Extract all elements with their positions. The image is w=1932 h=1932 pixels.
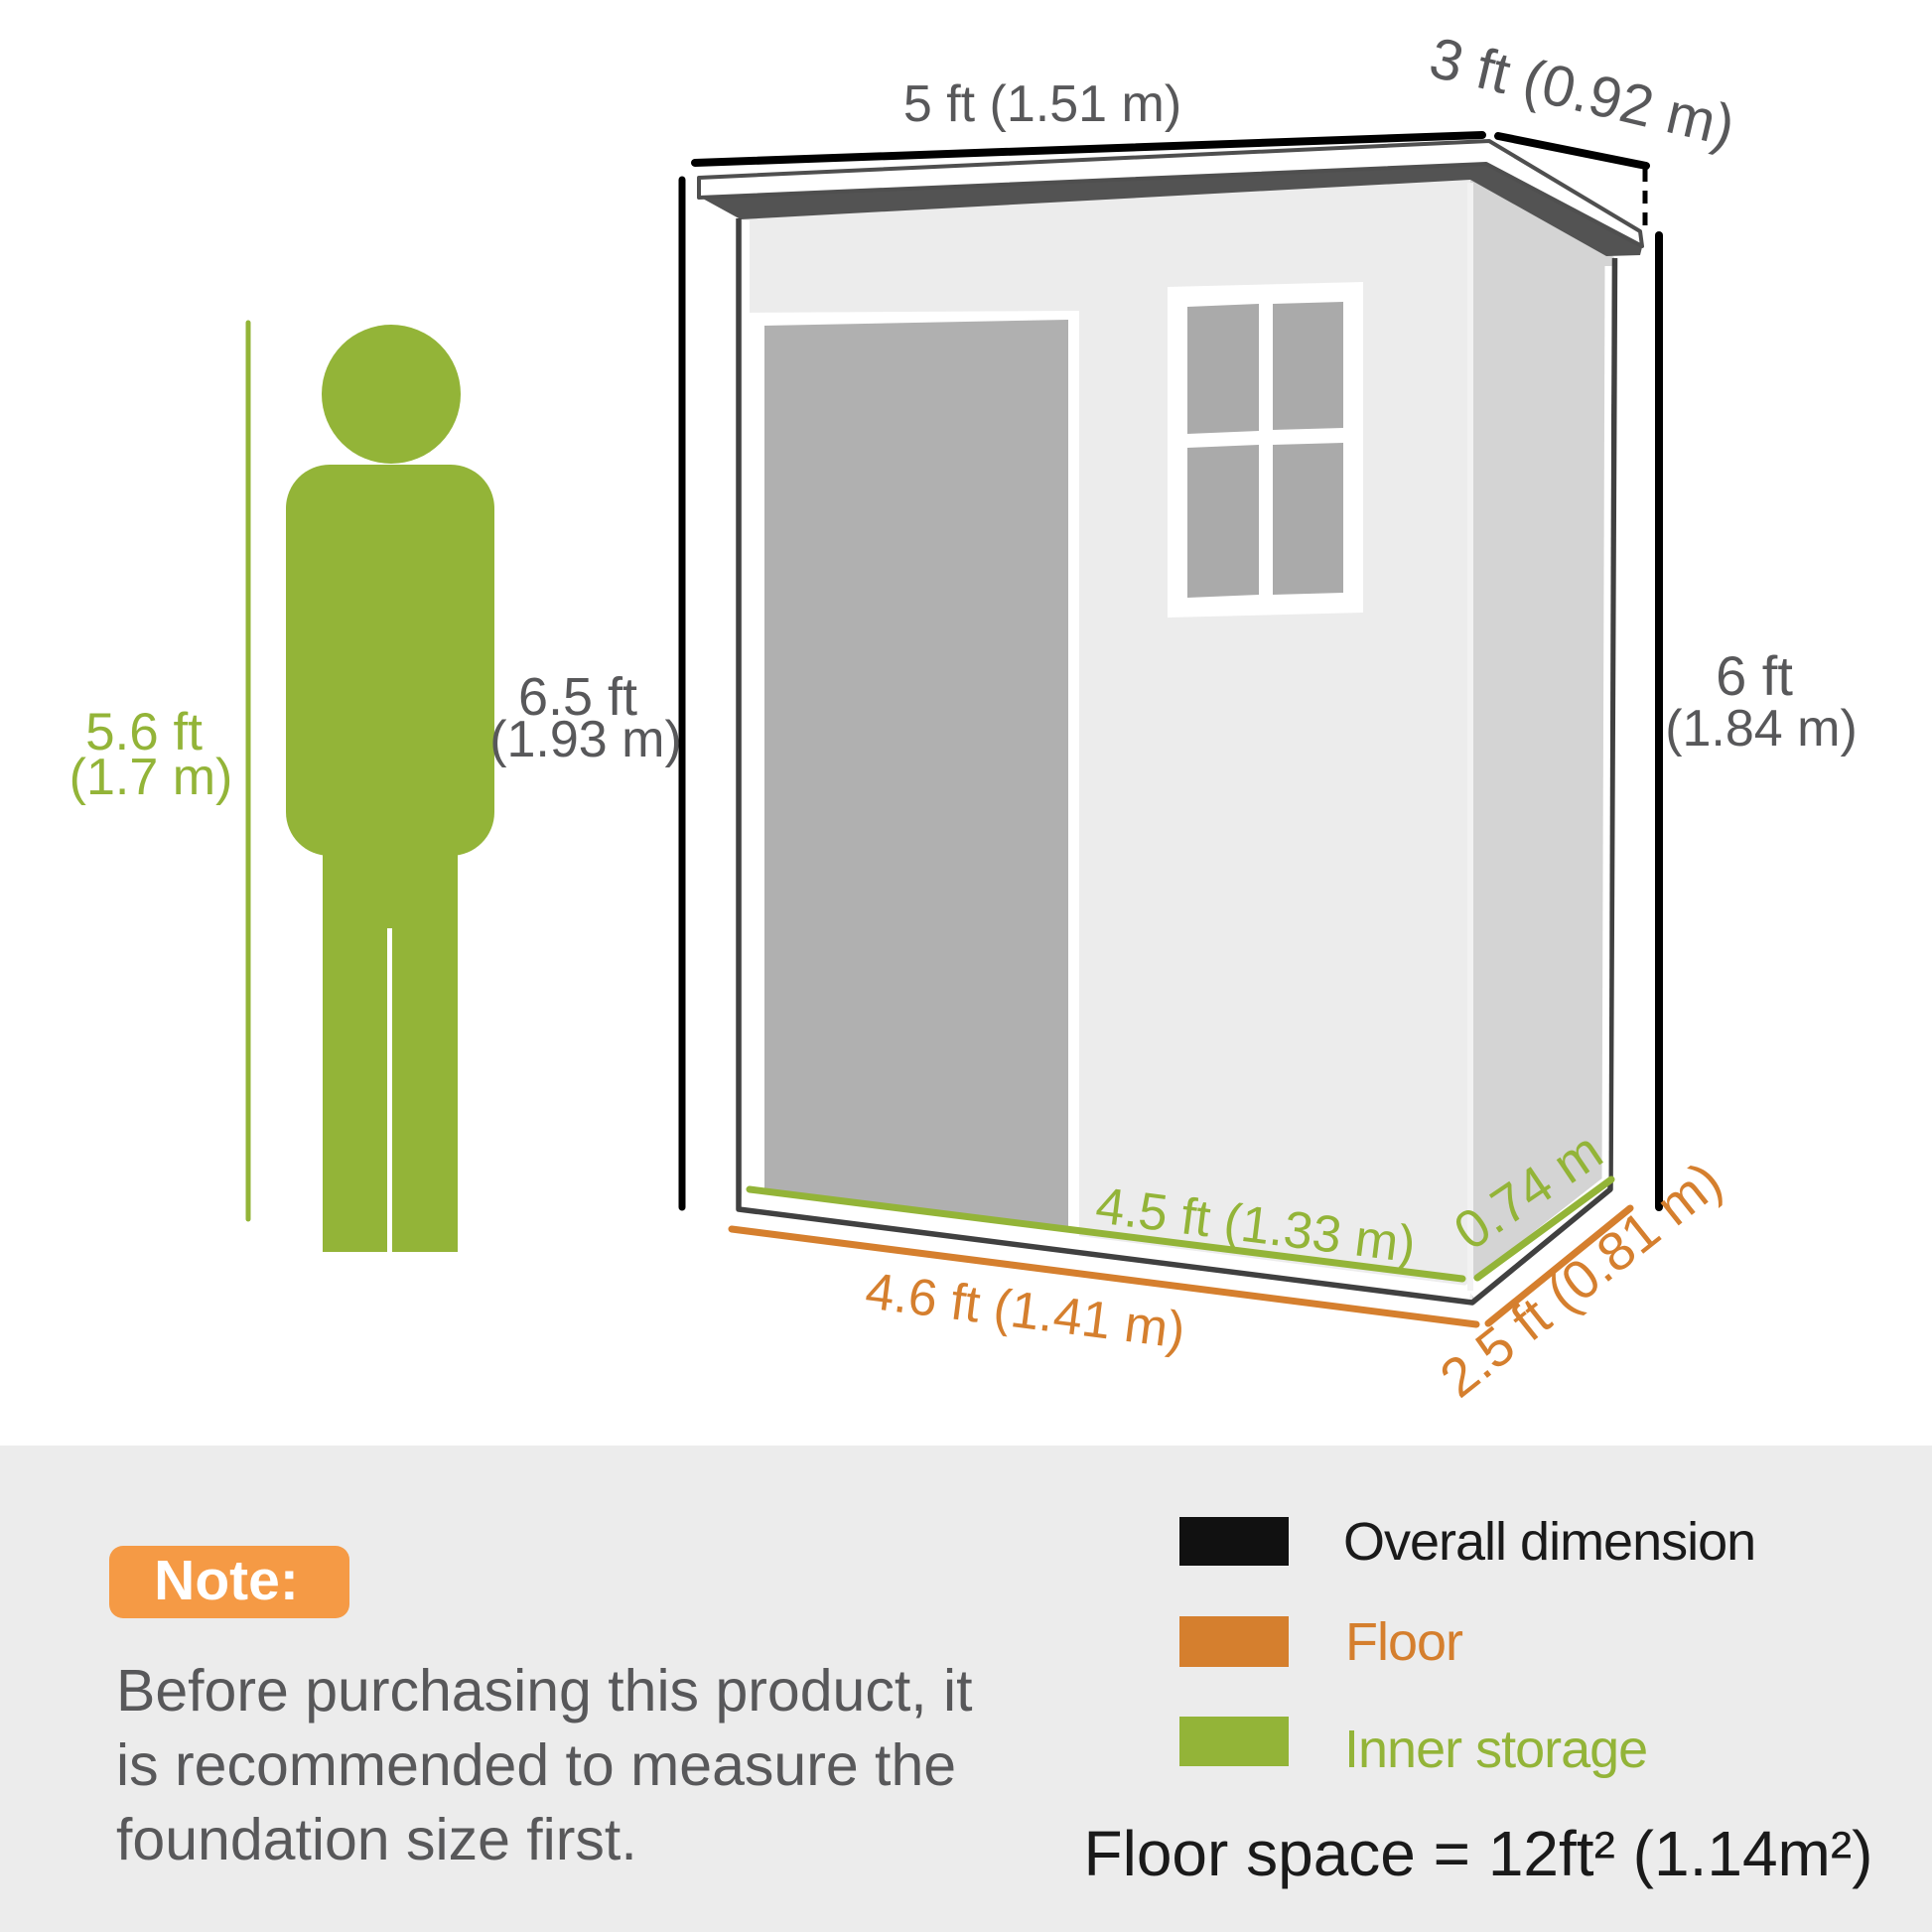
svg-text:Note:: Note:: [154, 1549, 299, 1612]
svg-text:6 ft: 6 ft: [1716, 644, 1793, 707]
svg-text:Inner storage: Inner storage: [1344, 1720, 1647, 1779]
svg-text:foundation size first.: foundation size first.: [116, 1807, 637, 1872]
svg-text:Overall dimension: Overall dimension: [1343, 1512, 1755, 1572]
svg-text:(1.7 m): (1.7 m): [69, 749, 233, 806]
svg-text:Floor: Floor: [1345, 1612, 1463, 1672]
svg-text:(1.84 m): (1.84 m): [1665, 700, 1858, 758]
svg-text:is recommended to measure the: is recommended to measure the: [116, 1732, 956, 1798]
svg-text:5 ft (1.51 m): 5 ft (1.51 m): [903, 75, 1181, 133]
svg-text:(1.93 m): (1.93 m): [489, 711, 682, 768]
svg-text:Floor space = 12ft² (1.14m²): Floor space = 12ft² (1.14m²): [1084, 1818, 1873, 1889]
svg-text:Before purchasing this product: Before purchasing this product, it: [116, 1658, 973, 1724]
